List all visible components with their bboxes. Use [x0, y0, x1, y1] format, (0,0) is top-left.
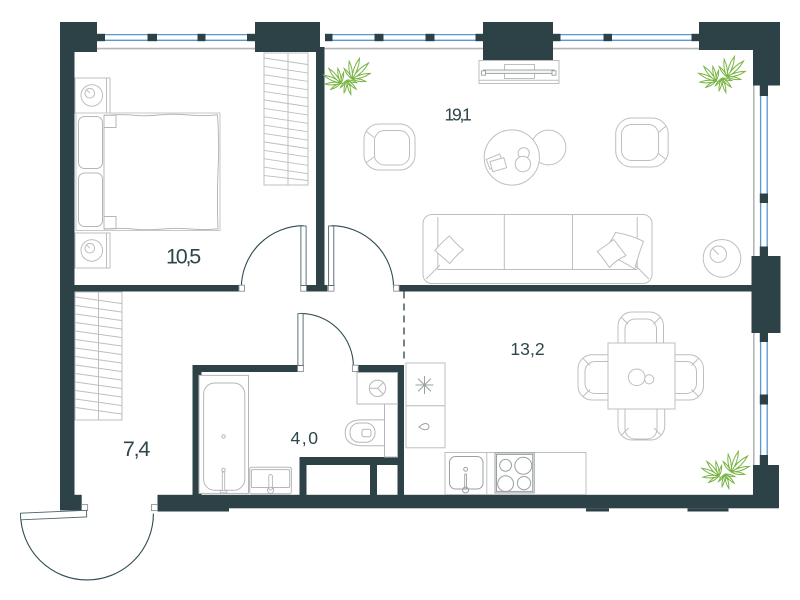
svg-text:4,0: 4,0: [291, 428, 320, 448]
svg-text:10,5: 10,5: [166, 245, 201, 269]
svg-text:13,2: 13,2: [510, 339, 544, 359]
svg-text:19,1: 19,1: [444, 105, 471, 125]
svg-text:7,4: 7,4: [123, 437, 151, 461]
